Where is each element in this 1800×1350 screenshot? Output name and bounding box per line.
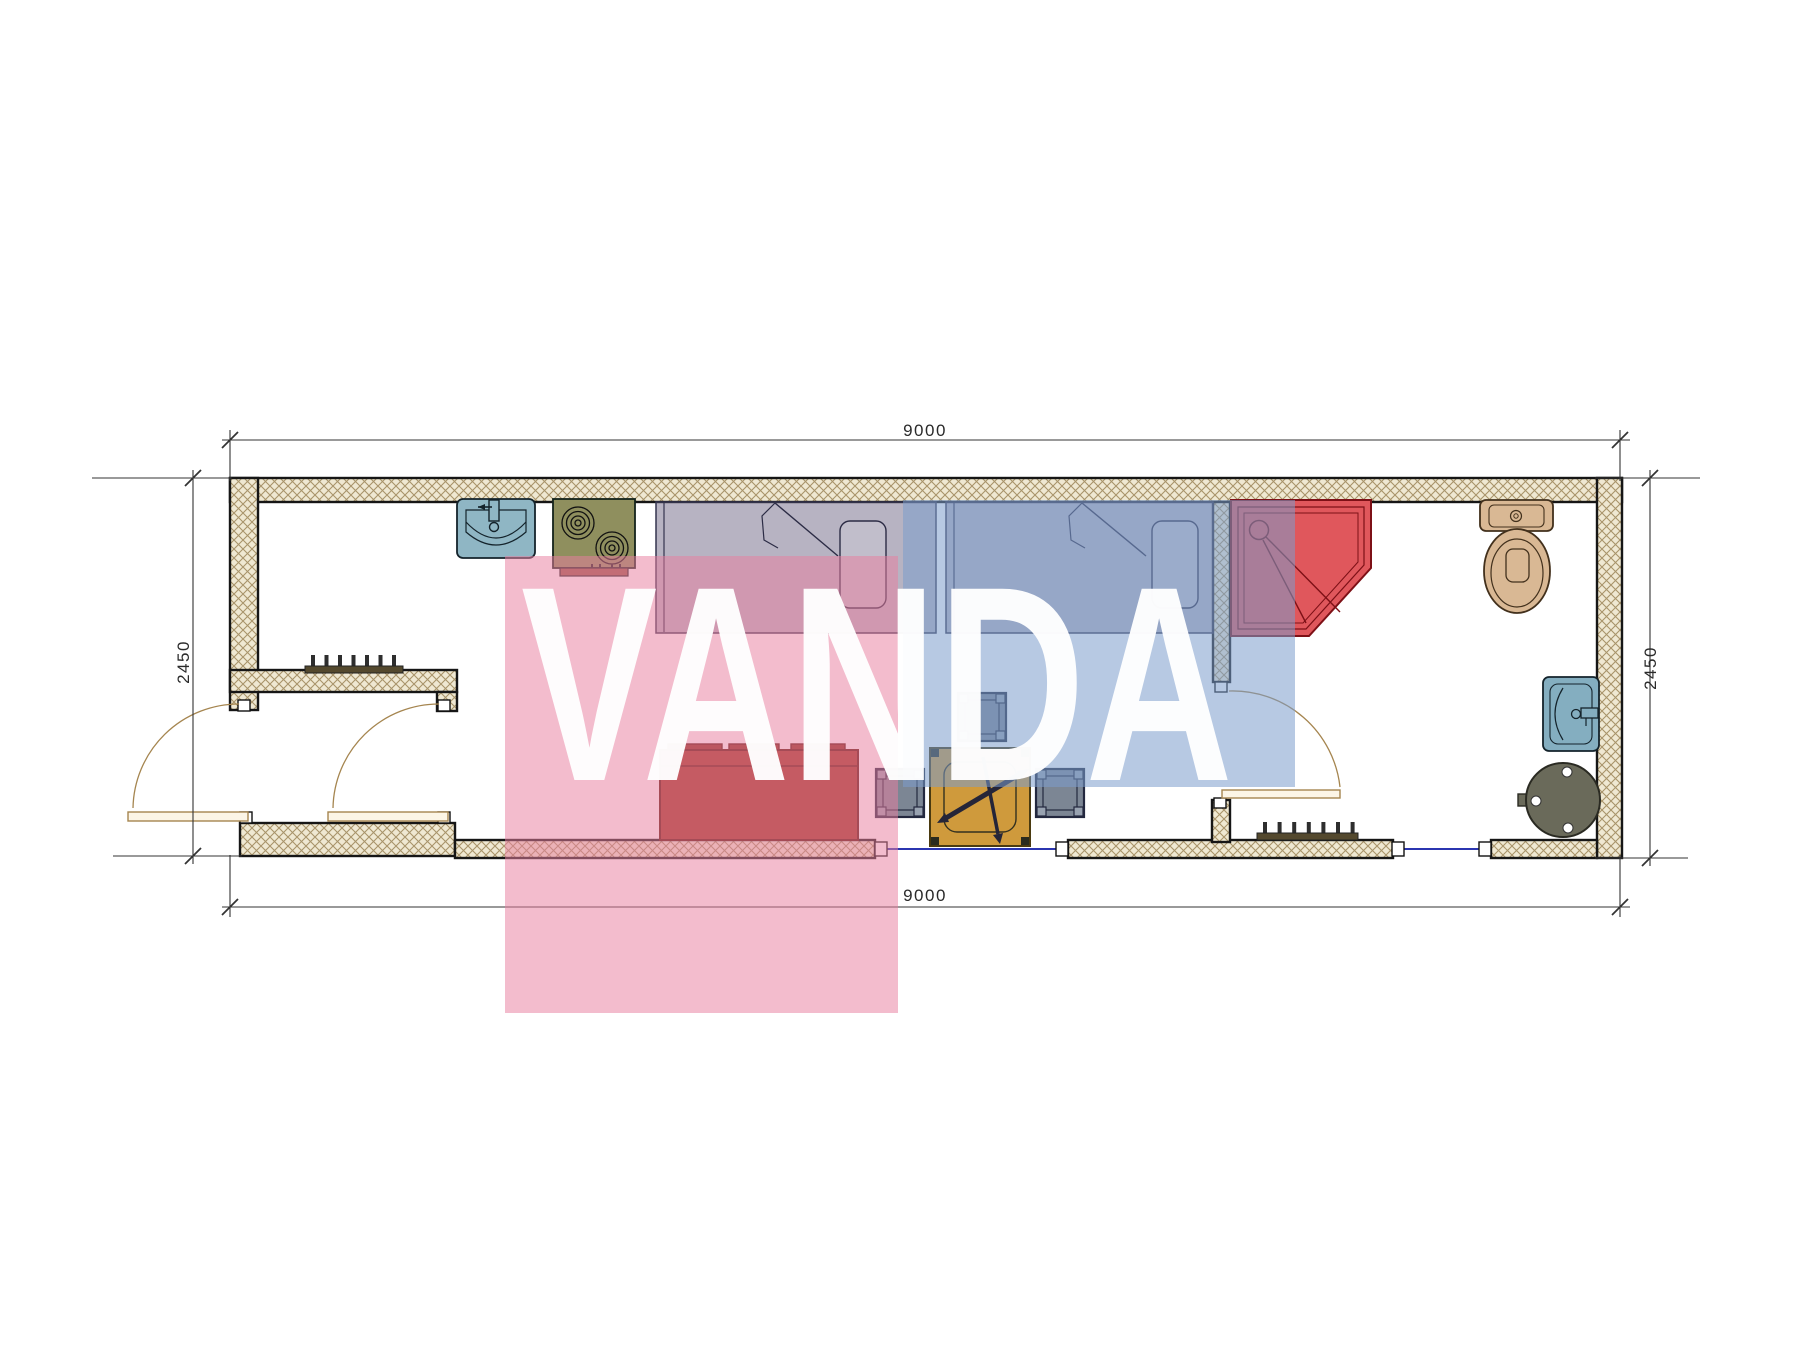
boiler-icon (1518, 763, 1600, 837)
entry-door-leaf (128, 812, 248, 821)
dim-top: 9000 (903, 421, 947, 440)
floor-plan-drawing: 9000 9000 2450 2450 VANDA (0, 0, 1800, 1350)
watermark-text: VANDA (521, 528, 1233, 839)
wall-top (230, 478, 1622, 502)
dim-left: 2450 (174, 640, 193, 684)
bathroom-sink-icon (1543, 677, 1599, 751)
dim-bottom: 9000 (903, 886, 947, 905)
wall-bottom-hall (240, 823, 455, 856)
watermark: VANDA (505, 500, 1295, 1013)
wall-bottom-right (1491, 840, 1597, 858)
floor-plan-canvas: 9000 9000 2450 2450 VANDA (0, 0, 1800, 1350)
bathroom-door-leaf (1222, 790, 1340, 798)
radiator-bottom-icon (1257, 822, 1358, 840)
entry-door-arc (133, 704, 239, 808)
hall-door-leaf (328, 812, 448, 821)
toilet-icon (1480, 500, 1553, 613)
hall-door-arc (333, 704, 439, 808)
radiator-hall-icon (305, 655, 403, 673)
dim-right: 2450 (1641, 646, 1660, 690)
